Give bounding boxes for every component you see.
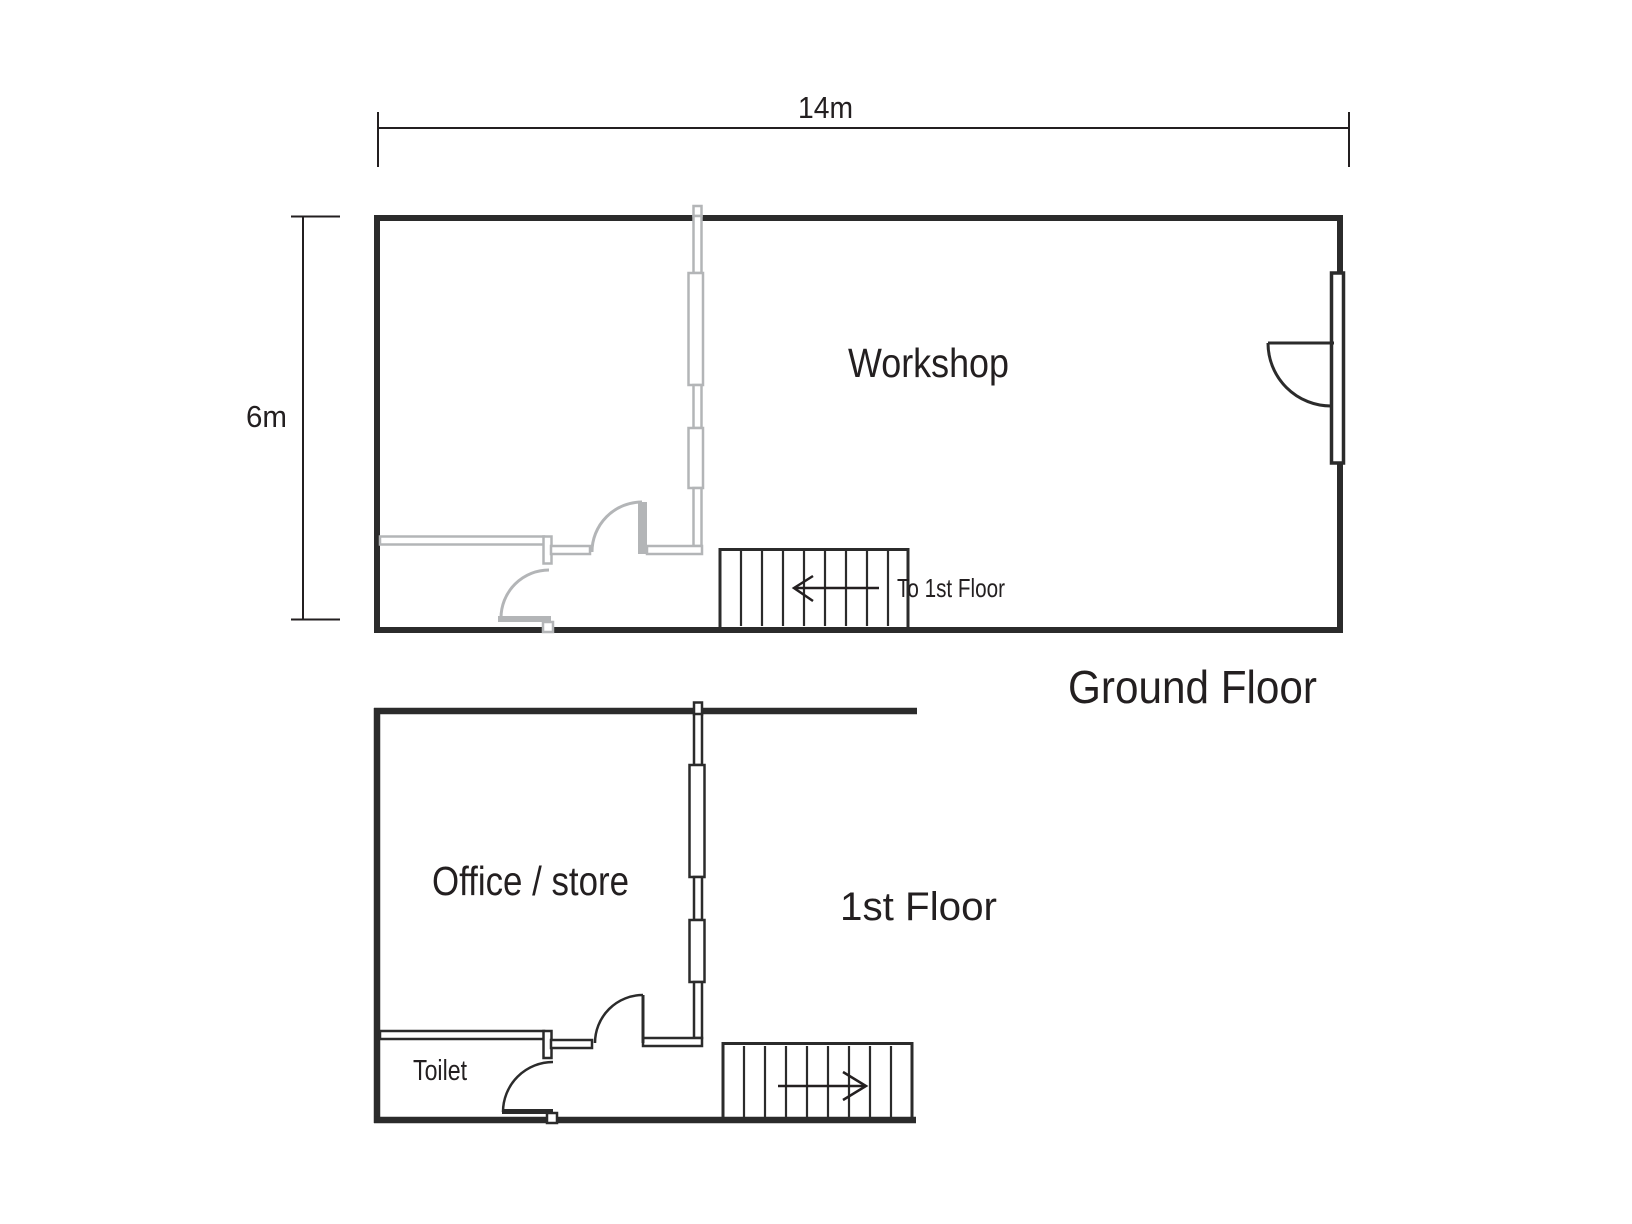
partition-wall-segment (694, 714, 702, 765)
partition-wall-west (380, 537, 544, 545)
stair-direction-arrow-right (778, 1072, 866, 1100)
stairs-ground-label: To 1st Floor (897, 573, 1005, 603)
floor-plan-canvas: 14m 6m (0, 0, 1632, 1224)
door-stop (543, 622, 553, 632)
door-swing-arc (503, 1062, 553, 1112)
door-leaf (502, 1109, 553, 1114)
partition-wall-segment (694, 877, 702, 920)
partition-wall-mid (551, 546, 590, 554)
window-panel (689, 273, 704, 385)
office-store-label: Office / store (432, 858, 629, 904)
height-dimension-label: 6m (246, 399, 287, 434)
workshop-outer-walls (377, 218, 1340, 630)
partition-wall-segment (694, 982, 702, 1038)
partition-wall-segment (694, 385, 702, 428)
office-door-first (595, 995, 643, 1043)
door-panel-bar (1332, 273, 1344, 463)
toilet-wall-west (380, 1031, 544, 1039)
toilet-walls (380, 1031, 592, 1058)
staircase-first (723, 1044, 912, 1119)
door-stop (547, 1113, 557, 1123)
window-panel (689, 428, 704, 488)
partition-wall-segment (694, 216, 702, 273)
toilet-wall-mid (551, 1040, 592, 1048)
interior-partition-black (643, 703, 705, 1047)
first-floor-plan: Office / store Toilet 1st Floor (374, 703, 997, 1124)
door-leaf (638, 502, 647, 554)
toilet-label: Toilet (413, 1055, 467, 1087)
ground-floor-title: Ground Floor (1068, 661, 1317, 713)
height-dimension: 6m (246, 216, 340, 620)
window-panel (690, 920, 705, 982)
toilet-door-first (502, 1062, 557, 1123)
width-dimension-label: 14m (798, 90, 853, 125)
door-swing-arc (595, 995, 643, 1043)
ground-floor-plan: 14m 6m (246, 90, 1349, 713)
partition-top-cap (694, 206, 702, 216)
window-panel (690, 765, 705, 877)
partition-wall-segment (694, 488, 702, 546)
partition-wall-east (647, 546, 702, 554)
first-floor-title: 1st Floor (840, 885, 997, 929)
workshop-label: Workshop (848, 340, 1009, 386)
width-dimension: 14m (378, 90, 1349, 167)
partition-top-slot (694, 703, 702, 715)
partition-wall-return (643, 1038, 702, 1046)
staircase-outline (723, 1044, 912, 1119)
